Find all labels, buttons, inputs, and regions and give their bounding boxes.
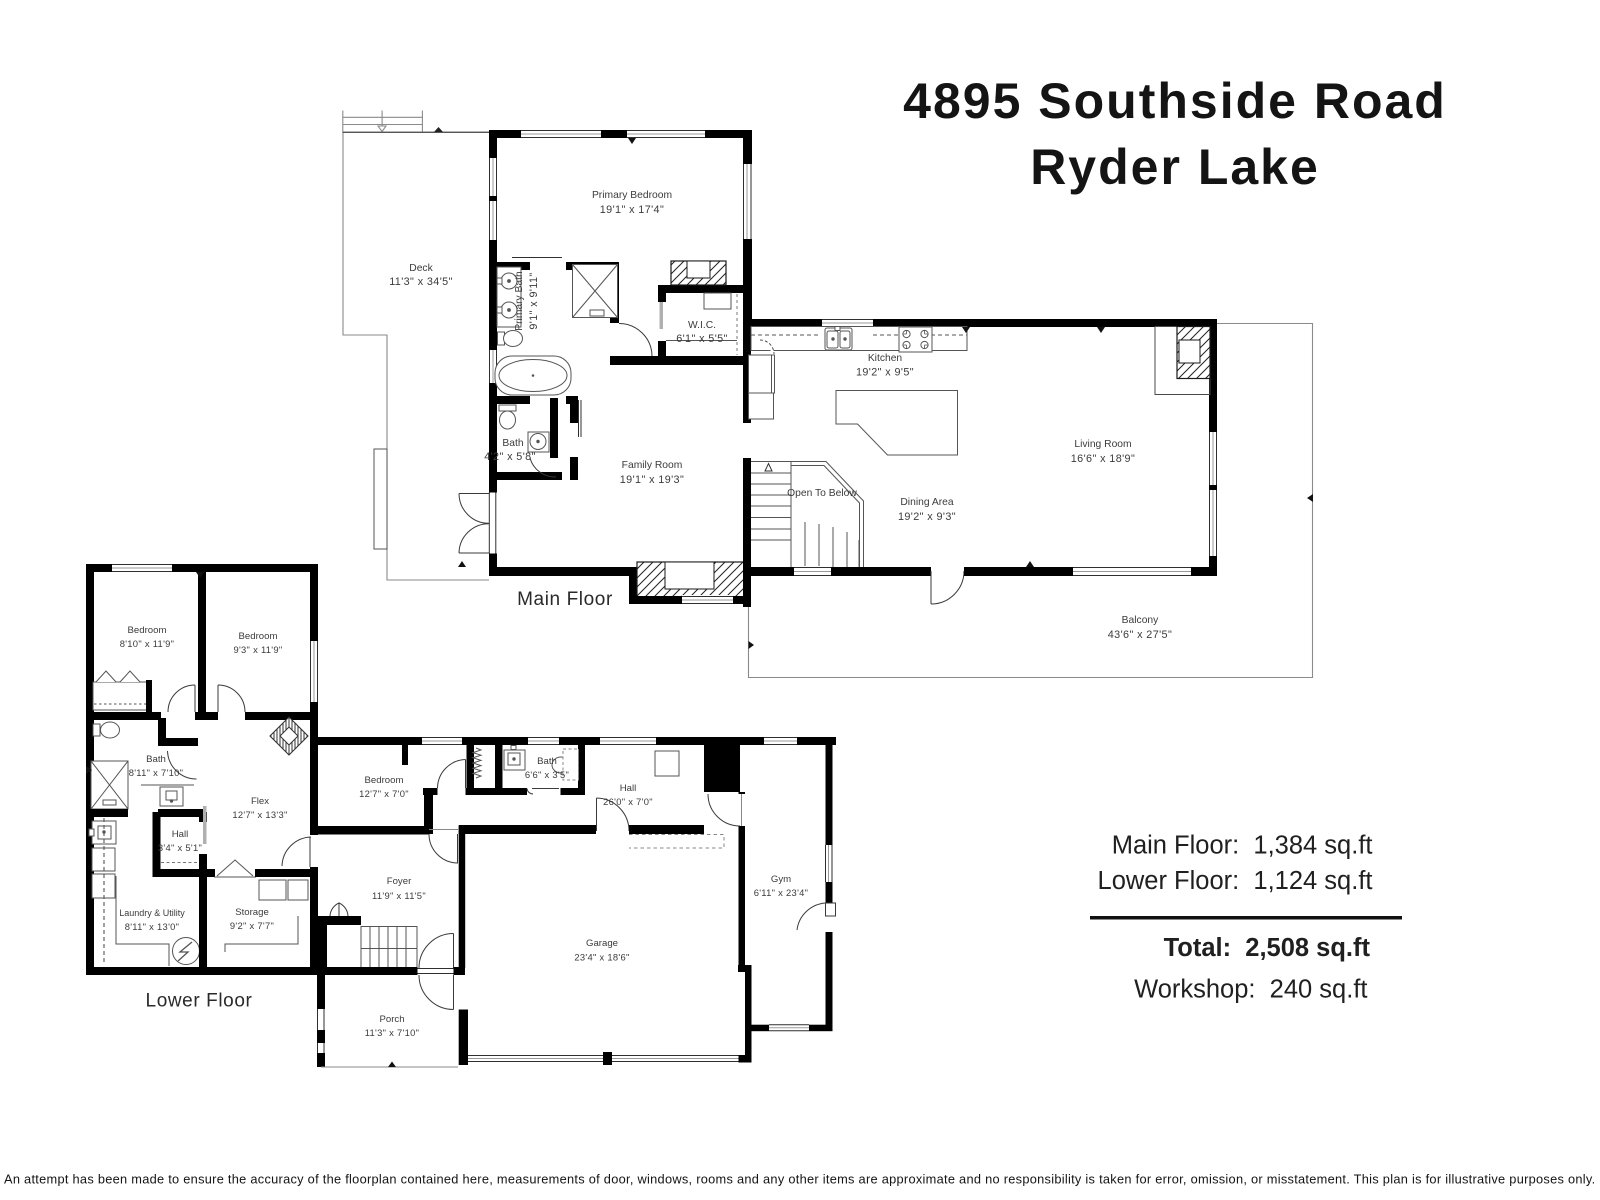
svg-text:An attempt has been made to en: An attempt has been made to ensure the a… (4, 1172, 1596, 1187)
svg-text:12'7" x 13'3": 12'7" x 13'3" (232, 809, 287, 820)
svg-text:19'1" x 17'4": 19'1" x 17'4" (600, 204, 664, 216)
svg-text:Dining Area: Dining Area (900, 497, 954, 508)
svg-text:Lower Floor: Lower Floor (146, 991, 253, 1012)
svg-text:W.I.C.: W.I.C. (688, 320, 716, 331)
svg-text:9'2" x 7'7": 9'2" x 7'7" (230, 920, 274, 931)
svg-text:Lower Floor: 1,124 sq.ft: Lower Floor: 1,124 sq.ft (1098, 867, 1373, 895)
svg-text:23'4" x 18'6": 23'4" x 18'6" (574, 952, 629, 963)
svg-text:Main Floor: Main Floor (517, 589, 613, 610)
svg-text:Ryder Lake: Ryder Lake (1030, 139, 1320, 195)
svg-text:Family Room: Family Room (622, 460, 683, 471)
svg-text:4895 Southside Road: 4895 Southside Road (903, 73, 1447, 129)
svg-text:Storage: Storage (235, 907, 269, 918)
svg-text:11'3" x 34'5": 11'3" x 34'5" (389, 276, 453, 288)
svg-text:Primary Bath: Primary Bath (514, 271, 525, 331)
svg-text:Bedroom: Bedroom (239, 631, 278, 642)
svg-text:6'11" x 23'4": 6'11" x 23'4" (754, 887, 809, 898)
svg-text:11'3" x 7'10": 11'3" x 7'10" (365, 1027, 420, 1038)
svg-text:3'4" x 5'1": 3'4" x 5'1" (158, 842, 202, 853)
svg-text:8'11" x 13'0": 8'11" x 13'0" (125, 921, 180, 932)
svg-text:19'2" x 9'3": 19'2" x 9'3" (898, 511, 956, 523)
svg-text:Primary Bedroom: Primary Bedroom (592, 190, 672, 201)
svg-text:16'6" x 18'9": 16'6" x 18'9" (1071, 453, 1135, 465)
svg-text:Main Floor: 1,384 sq.ft: Main Floor: 1,384 sq.ft (1112, 832, 1373, 860)
svg-text:Bath: Bath (537, 756, 557, 767)
svg-text:Foyer: Foyer (387, 876, 412, 887)
svg-text:Total: 2,508 sq.ft: Total: 2,508 sq.ft (1164, 934, 1371, 962)
svg-text:Gym: Gym (771, 874, 791, 885)
svg-text:Kitchen: Kitchen (868, 353, 903, 364)
svg-text:Deck: Deck (409, 263, 433, 274)
svg-text:4'2" x 5'8": 4'2" x 5'8" (484, 451, 536, 463)
svg-text:Flex: Flex (251, 796, 269, 807)
svg-text:9'1" x 9'11": 9'1" x 9'11" (528, 272, 540, 329)
svg-text:9'3" x 11'9": 9'3" x 11'9" (233, 644, 282, 655)
svg-text:Hall: Hall (620, 783, 637, 794)
svg-text:8'10" x 11'9": 8'10" x 11'9" (120, 638, 175, 649)
svg-text:Bedroom: Bedroom (128, 625, 167, 636)
svg-text:43'6" x 27'5": 43'6" x 27'5" (1108, 629, 1172, 641)
svg-text:11'9" x 11'5": 11'9" x 11'5" (372, 890, 426, 901)
svg-text:Living Room: Living Room (1074, 439, 1131, 450)
svg-text:Porch: Porch (379, 1014, 404, 1025)
svg-text:12'7" x 7'0": 12'7" x 7'0" (359, 788, 409, 799)
svg-text:Bath: Bath (502, 438, 523, 449)
svg-text:Balcony: Balcony (1122, 615, 1159, 626)
svg-text:Workshop: 240 sq.ft: Workshop: 240 sq.ft (1134, 976, 1367, 1004)
svg-text:Bedroom: Bedroom (365, 775, 404, 786)
svg-text:Bath: Bath (146, 754, 166, 765)
svg-text:Open To Below: Open To Below (787, 488, 857, 499)
svg-text:6'6" x 3'5": 6'6" x 3'5" (525, 769, 569, 780)
svg-text:19'2" x 9'5": 19'2" x 9'5" (856, 367, 914, 379)
svg-text:Laundry & Utility: Laundry & Utility (119, 908, 185, 918)
svg-text:6'1" x 5'5": 6'1" x 5'5" (676, 333, 728, 345)
svg-text:Hall: Hall (172, 829, 189, 840)
svg-text:8'11" x 7'10": 8'11" x 7'10" (129, 767, 184, 778)
svg-text:19'1" x 19'3": 19'1" x 19'3" (620, 474, 684, 486)
svg-text:Garage: Garage (586, 938, 618, 949)
